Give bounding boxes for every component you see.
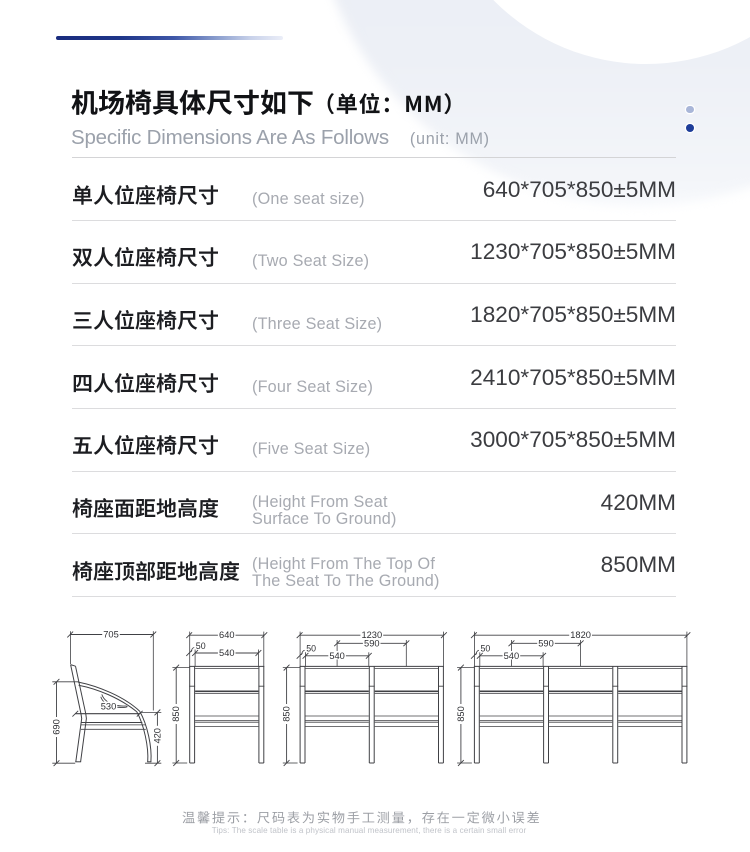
svg-text:590: 590 — [538, 638, 554, 648]
svg-text:50: 50 — [196, 641, 206, 651]
svg-text:850: 850 — [282, 706, 292, 722]
svg-text:640: 640 — [219, 630, 235, 640]
svg-text:1820: 1820 — [570, 630, 591, 640]
svg-text:850: 850 — [171, 706, 181, 722]
svg-text:50: 50 — [481, 644, 491, 654]
svg-text:530: 530 — [101, 701, 117, 711]
svg-text:540: 540 — [329, 651, 345, 661]
svg-text:420: 420 — [152, 728, 162, 744]
svg-text:50: 50 — [306, 644, 316, 654]
svg-text:850: 850 — [456, 706, 466, 722]
svg-text:705: 705 — [103, 630, 119, 640]
svg-text:540: 540 — [504, 651, 520, 661]
svg-text:590: 590 — [364, 638, 380, 648]
svg-text:690: 690 — [52, 719, 62, 735]
svg-text:540: 540 — [219, 648, 235, 658]
